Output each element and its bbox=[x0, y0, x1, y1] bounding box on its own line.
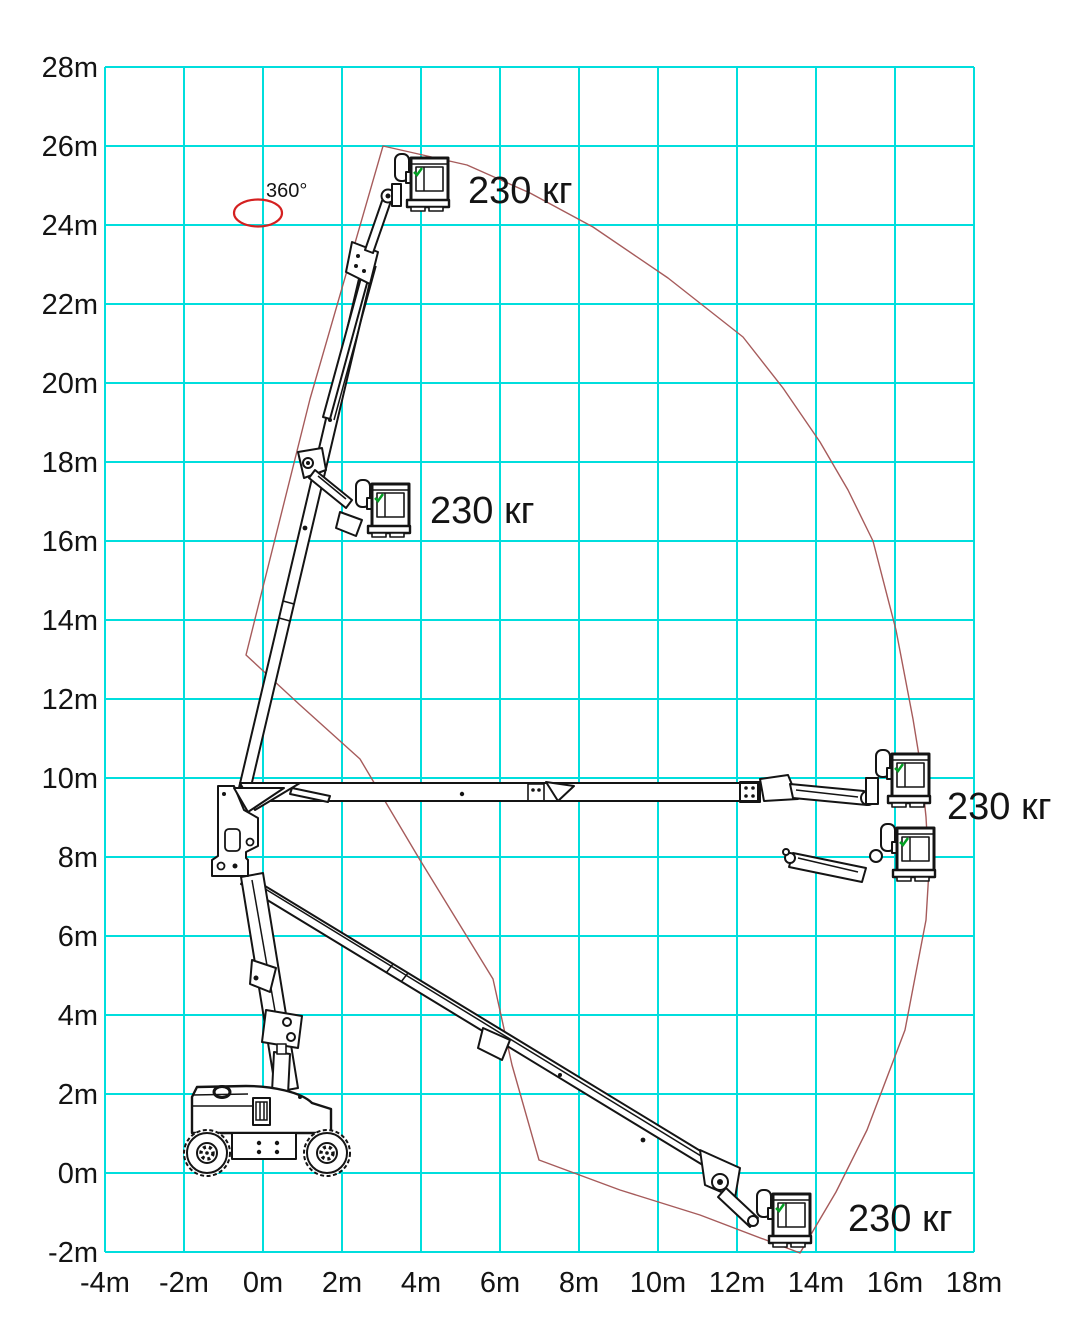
y-tick-label: 26m bbox=[42, 131, 98, 163]
boom-lift-machine bbox=[184, 154, 935, 1247]
y-tick-label: 4m bbox=[58, 1000, 98, 1032]
x-tick-label: 12m bbox=[709, 1267, 765, 1299]
y-tick-label: 10m bbox=[42, 763, 98, 795]
x-tick-label: 10m bbox=[630, 1267, 686, 1299]
jib-lowered-stage bbox=[783, 849, 882, 882]
x-tick-label: 6m bbox=[480, 1267, 520, 1299]
x-tick-label: 4m bbox=[401, 1267, 441, 1299]
y-tick-label: -2m bbox=[48, 1237, 98, 1269]
x-tick-label: 14m bbox=[788, 1267, 844, 1299]
y-tick-label: 2m bbox=[58, 1079, 98, 1111]
x-tick-label: 8m bbox=[559, 1267, 599, 1299]
boom-horizontal bbox=[240, 775, 878, 810]
grid bbox=[105, 67, 974, 1252]
rotation-indicator: 360° bbox=[234, 180, 307, 227]
x-tick-label: 2m bbox=[322, 1267, 362, 1299]
y-tick-label: 24m bbox=[42, 210, 98, 242]
y-tick-label: 22m bbox=[42, 289, 98, 321]
x-tick-label: 16m bbox=[867, 1267, 923, 1299]
x-tick-label: -2m bbox=[159, 1267, 209, 1299]
y-tick-label: 12m bbox=[42, 684, 98, 716]
rotation-label: 360° bbox=[266, 180, 307, 202]
x-tick-label: 18m bbox=[946, 1267, 1002, 1299]
capacity-label-bottom: 230 кг bbox=[848, 1198, 952, 1240]
capacity-label-upper-left: 230 кг bbox=[430, 490, 534, 532]
basket-bottom bbox=[757, 1190, 811, 1247]
x-tick-label: -4m bbox=[80, 1267, 130, 1299]
y-tick-label: 18m bbox=[42, 447, 98, 479]
y-tick-label: 0m bbox=[58, 1158, 98, 1190]
y-tick-label: 8m bbox=[58, 842, 98, 874]
y-tick-label: 14m bbox=[42, 605, 98, 637]
chassis bbox=[184, 1086, 350, 1176]
basket-upper-left bbox=[356, 480, 410, 537]
basket-right-lower bbox=[881, 824, 935, 881]
basket-top bbox=[395, 154, 449, 211]
rotation-ellipse-icon bbox=[234, 200, 282, 227]
y-tick-label: 28m bbox=[42, 52, 98, 84]
capacity-label-top: 230 кг bbox=[468, 170, 572, 212]
y-tick-label: 16m bbox=[42, 526, 98, 558]
y-tick-label: 20m bbox=[42, 368, 98, 400]
capacity-labels: 230 кг 230 кг 230 кг 230 кг bbox=[430, 170, 1051, 1240]
reach-diagram-page: 360° bbox=[0, 0, 1080, 1344]
capacity-label-right: 230 кг bbox=[947, 786, 1051, 828]
wheel-left bbox=[184, 1130, 230, 1176]
x-axis-labels: -4m -2m 0m 2m 4m 6m 8m 10m 12m 14m 16m 1… bbox=[80, 1267, 1002, 1299]
x-tick-label: 0m bbox=[243, 1267, 283, 1299]
wheel-right bbox=[304, 1130, 350, 1176]
y-tick-label: 6m bbox=[58, 921, 98, 953]
boom-lift-working-envelope-diagram: 360° bbox=[0, 0, 1080, 1344]
y-axis-labels: 28m 26m 24m 22m 20m 18m 16m 14m 12m 10m … bbox=[42, 52, 98, 1269]
